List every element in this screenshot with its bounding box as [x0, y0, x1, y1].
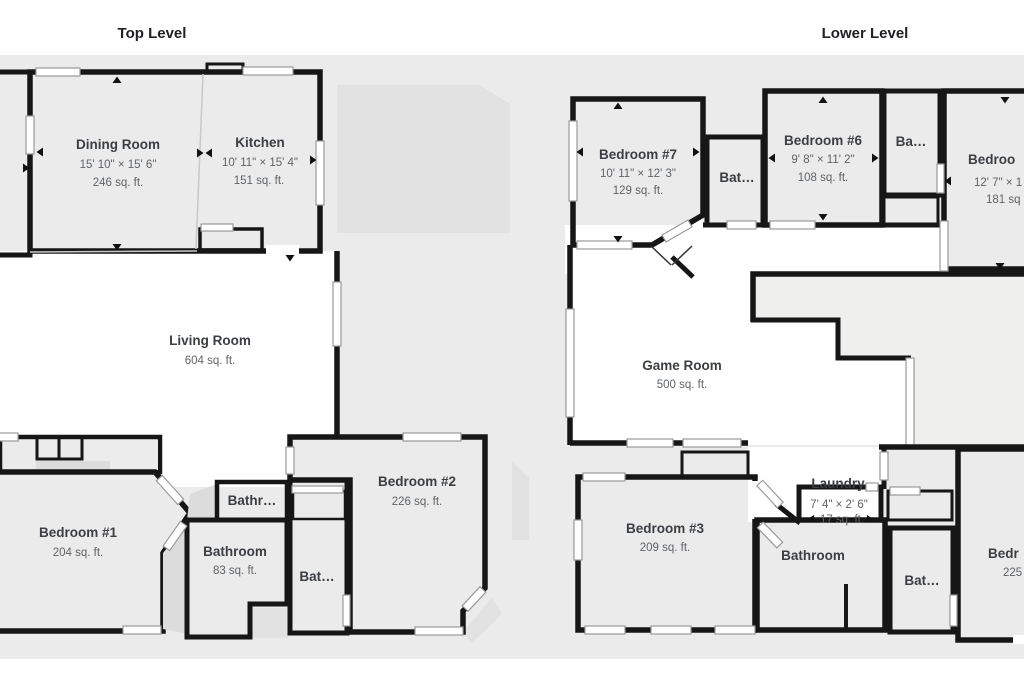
dining-living-divider: [30, 251, 197, 252]
label-bedroom1-name: Bedroom #1: [39, 525, 118, 540]
label-bedroom2-area: 226 sq. ft.: [392, 496, 443, 508]
label-dining-name: Dining Room: [76, 137, 160, 152]
label-bathroom-area: 83 sq. ft.: [213, 565, 257, 577]
label-bedroom-right-bottom-name: Bedr: [988, 546, 1020, 561]
label-bedroom6-area: 108 sq. ft.: [798, 172, 849, 184]
label-bedroom-right-top-area: 181 sq: [986, 194, 1021, 206]
label-dining-dims: 15' 10" × 15' 6": [80, 159, 157, 171]
label-bath-mid-name: Bat…: [719, 170, 754, 185]
label-kitchen-dims: 10' 11" × 15' 4": [222, 157, 298, 169]
label-bedroom1-area: 204 sq. ft.: [53, 547, 104, 559]
label-living-name: Living Room: [169, 333, 251, 348]
step-window: [906, 358, 914, 446]
label-bedroom6-dims: 9' 8" × 11' 2": [791, 154, 854, 166]
label-bedroom2-name: Bedroom #2: [378, 474, 456, 489]
label-laundry-name: Laundry: [811, 476, 865, 491]
label-bedroom3-name: Bedroom #3: [626, 521, 705, 536]
patio-silhouette: [337, 85, 510, 233]
label-bedroom3-area: 209 sq. ft.: [640, 542, 691, 554]
label-bedroom-right-bottom-area: 225: [1003, 567, 1022, 579]
label-laundry-area: 17 sq. ft.: [820, 514, 864, 526]
label-dining-area: 246 sq. ft.: [93, 177, 144, 189]
floorplan-canvas: Dining Room 15' 10" × 15' 6" 246 sq. ft.…: [0, 0, 1024, 683]
floorplan-viewer: Top Level Lower Level: [0, 0, 1024, 683]
label-bathroom-name: Bathroom: [203, 544, 267, 559]
label-bedroom7-area: 129 sq. ft.: [613, 185, 664, 197]
hallway: [158, 437, 290, 487]
label-kitchen-area: 151 sq. ft.: [234, 175, 285, 187]
step-silhouette: [252, 608, 288, 638]
label-bathroom-lower-name: Bathroom: [781, 548, 845, 563]
label-bedroom-right-top-dims: 12' 7" × 1: [974, 177, 1022, 189]
label-kitchen-name: Kitchen: [235, 135, 285, 150]
kitchen-counter-slot: [201, 224, 233, 231]
door-gap-right: [1013, 635, 1024, 644]
label-bath-trunc-name: Bat…: [299, 569, 334, 584]
label-bath-bottom-right-name: Bat…: [904, 573, 939, 588]
label-game-name: Game Room: [642, 358, 722, 373]
label-bedroom-right-top-name: Bedroo: [968, 152, 1015, 167]
label-game-area: 500 sq. ft.: [657, 379, 708, 391]
laundry-door-slot: [866, 483, 878, 491]
label-bath-upper-right-name: Ba…: [896, 134, 927, 149]
label-bedroom6-name: Bedroom #6: [784, 133, 863, 148]
label-bedroom7-dims: 10' 11" × 12' 3": [600, 168, 676, 180]
label-laundry-dims: 7' 4" × 2' 6": [810, 499, 868, 511]
label-living-area: 604 sq. ft.: [185, 355, 236, 367]
label-bath-small-name: Bathr…: [228, 493, 277, 508]
label-bedroom7-name: Bedroom #7: [599, 147, 677, 162]
